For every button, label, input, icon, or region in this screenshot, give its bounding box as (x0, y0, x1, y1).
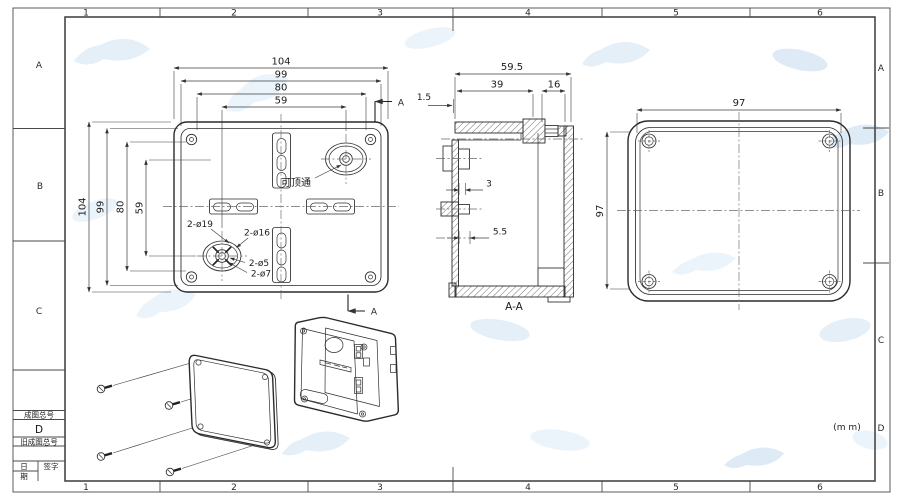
front-left-dimensions: 104 99 80 59 (78, 122, 212, 292)
front-labels: 可顶通 2-ø19 2-ø16 2-ø5 2-ø7 (187, 165, 341, 280)
section-label: A-A (505, 301, 524, 313)
zone-top-3: 3 (377, 9, 383, 19)
zone-bottom-2: 2 (231, 483, 237, 493)
screw (166, 468, 181, 476)
section-letter-top: A (398, 99, 405, 109)
back-dim-width: 97 (733, 98, 746, 109)
zone-right-A: A (878, 64, 885, 74)
dim-total-depth: 59.5 (501, 62, 523, 73)
zone-top-1: 1 (83, 9, 89, 19)
section-nipple (545, 126, 558, 137)
zone-bottom-5: 5 (673, 483, 679, 493)
zone-bottom-1: 1 (83, 483, 89, 493)
date-label-1: 日 (20, 462, 28, 471)
section-foot (548, 297, 570, 302)
zone-top-5: 5 (673, 9, 679, 19)
isometric-view (97, 317, 398, 475)
zone-top-4: 4 (525, 9, 531, 19)
zone-right-B: B (878, 189, 884, 199)
section-letter-bottom: A (371, 308, 378, 318)
drawing-no-label: 成图总号 (24, 410, 54, 420)
section-knockout-boss (523, 119, 545, 143)
screws (97, 385, 181, 476)
back-view: 97 97 (595, 98, 860, 310)
top-zone-ticks (160, 8, 750, 31)
zone-right-C: C (878, 336, 884, 346)
dim-height-outer: 104 (78, 197, 89, 216)
knockout-note: 可顶通 (281, 177, 311, 189)
zone-left-A: A (36, 61, 43, 71)
back-dim-height: 97 (595, 205, 606, 218)
dim-width-inner: 80 (275, 83, 288, 94)
section-bottom-wall (455, 286, 565, 297)
zone-bottom-4: 4 (525, 483, 531, 493)
dim-rib: 3 (486, 180, 492, 190)
iso-box (295, 317, 399, 421)
sheet-border: 1 2 3 4 5 6 1 2 3 4 5 6 A B C A B C D (13, 8, 890, 493)
zone-bottom-3: 3 (377, 483, 383, 493)
knockout-d19-label: 2-ø19 (187, 220, 213, 230)
screw (165, 402, 180, 410)
section-right-wall (564, 126, 574, 297)
date-label-2: 期 (20, 472, 28, 481)
dim-width-outer: 104 (271, 57, 290, 68)
zone-top-6: 6 (817, 9, 823, 19)
dim-width-lid: 99 (275, 70, 288, 81)
front-centerlines (163, 114, 399, 301)
dim-inner-depth: 39 (491, 80, 504, 91)
zone-bottom-6: 6 (817, 483, 823, 493)
dim-width-knockouts: 59 (275, 96, 288, 107)
right-zone-ticks (863, 128, 889, 263)
drawing-no-value: D (35, 424, 43, 436)
dim-lip: 1.5 (417, 93, 431, 103)
zone-left-C: C (36, 307, 42, 317)
dim-boss-depth: 16 (548, 80, 561, 91)
section-dimensions: 59.5 39 16 1.5 3 5.5 (417, 62, 571, 244)
dim-height-inner: 80 (116, 201, 127, 214)
outer-border (13, 8, 890, 492)
zone-top-2: 2 (231, 9, 237, 19)
left-zone-labels: A B C (36, 61, 43, 317)
section-view: 59.5 39 16 1.5 3 5.5 A-A (417, 62, 584, 313)
inner-frame (65, 17, 875, 481)
dim-height-lid: 99 (96, 201, 107, 214)
right-zone-labels: A B C D (878, 64, 885, 434)
old-drawing-no-label: 旧成图总号 (20, 437, 58, 447)
screw (97, 385, 112, 393)
dim-rib2: 5.5 (493, 228, 507, 238)
section-top-wall (455, 122, 523, 133)
dim-height-knockouts: 59 (135, 202, 146, 215)
section-left-tab-inner (459, 149, 470, 169)
drawing-sheet: 1 2 3 4 5 6 1 2 3 4 5 6 A B C A B C D (0, 0, 900, 500)
signature-label: 签字 (44, 461, 59, 471)
iso-lid (189, 355, 278, 449)
title-block: 成图总号 D 旧成图总号 日 期 签字 (13, 370, 65, 481)
bottom-slot-group (273, 228, 291, 283)
section-bottom-boss (538, 268, 564, 286)
bottom-zone-ticks (160, 467, 750, 492)
hole-d5-label: 2-ø5 (249, 259, 269, 269)
knockout-d16-label: 2-ø16 (244, 229, 270, 239)
zone-right-D: D (878, 424, 885, 434)
zone-left-B: B (37, 182, 43, 192)
units-note: (m m) (833, 423, 860, 433)
screw (97, 453, 112, 461)
hole-d7-label: 2-ø7 (251, 270, 271, 280)
